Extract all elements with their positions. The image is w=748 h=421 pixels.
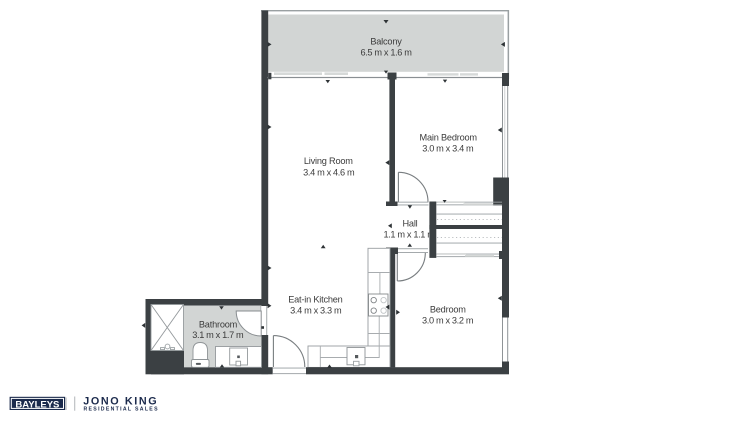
svg-text:Living Room: Living Room (304, 156, 353, 166)
svg-text:RESIDENTIAL SALES: RESIDENTIAL SALES (84, 406, 159, 412)
svg-text:Hall: Hall (402, 218, 417, 228)
svg-text:3.4 m x 3.3 m: 3.4 m x 3.3 m (290, 306, 342, 316)
svg-text:BAYLEYS: BAYLEYS (15, 399, 59, 410)
svg-text:1.1 m x 1.1 m: 1.1 m x 1.1 m (383, 230, 435, 240)
svg-text:6.5 m x 1.6 m: 6.5 m x 1.6 m (360, 47, 412, 57)
svg-text:Main Bedroom: Main Bedroom (420, 133, 478, 143)
svg-text:3.1 m x 1.7 m: 3.1 m x 1.7 m (192, 330, 244, 340)
svg-text:Bedroom: Bedroom (430, 305, 466, 315)
svg-text:3.0 m x 3.4 m: 3.0 m x 3.4 m (422, 144, 474, 154)
svg-text:Balcony: Balcony (370, 36, 402, 46)
svg-text:3.0 m x 3.2 m: 3.0 m x 3.2 m (422, 315, 474, 325)
svg-text:Eat-in Kitchen: Eat-in Kitchen (288, 294, 342, 304)
svg-text:Bathroom: Bathroom (199, 319, 238, 329)
svg-text:3.4 m x 4.6 m: 3.4 m x 4.6 m (303, 168, 355, 178)
